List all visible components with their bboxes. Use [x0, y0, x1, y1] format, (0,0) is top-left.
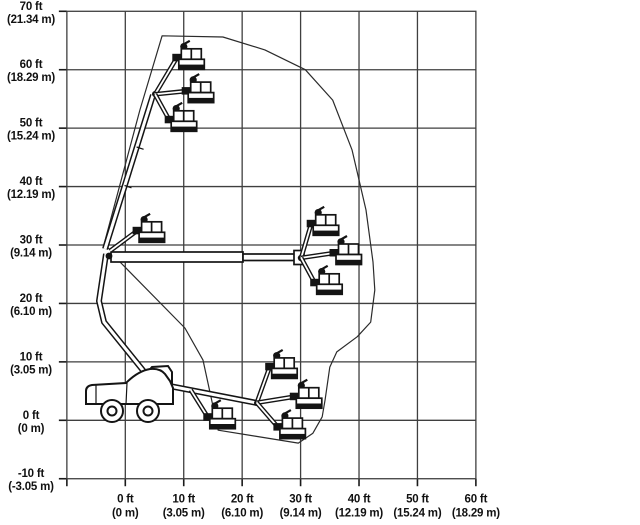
platform-basket	[330, 236, 362, 265]
x-tick-label-ft: 60 ft	[465, 494, 488, 506]
y-tick-label-m: (21.34 m)	[7, 14, 55, 26]
x-tick-label-m: (18.29 m)	[452, 508, 500, 520]
platform-basket	[265, 350, 297, 379]
y-tick-label-ft: 10 ft	[20, 351, 43, 363]
x-tick-label-m: (9.14 m)	[280, 508, 322, 520]
y-tick-label-ft: -10 ft	[18, 468, 45, 480]
platform-basket	[133, 214, 165, 243]
y-tick-label-m: (-3.05 m)	[8, 481, 54, 493]
y-tick-label-m: (12.19 m)	[7, 189, 55, 201]
platform-basket	[307, 207, 339, 236]
telescopic-boom-outer	[111, 252, 243, 262]
y-tick-label-ft: 0 ft	[23, 410, 40, 422]
y-tick-label-ft: 30 ft	[20, 235, 43, 247]
x-tick-label-m: (15.24 m)	[393, 508, 441, 520]
platform-basket	[182, 74, 214, 103]
y-tick-label-ft: 50 ft	[20, 118, 43, 130]
x-tick-label-m: (3.05 m)	[163, 508, 205, 520]
platform-basket	[172, 41, 204, 70]
platform-basket	[203, 400, 235, 429]
reach-diagram: 70 ft(21.34 m)60 ft(18.29 m)50 ft(15.24 …	[0, 0, 640, 525]
y-tick-label-ft: 60 ft	[20, 59, 43, 71]
x-tick-label-ft: 0 ft	[117, 494, 134, 506]
y-tick-label-m: (3.05 m)	[10, 364, 52, 376]
chassis-body	[86, 369, 173, 404]
x-tick-label-ft: 40 ft	[348, 494, 371, 506]
x-tick-label-ft: 50 ft	[406, 494, 429, 506]
x-tick-label-ft: 20 ft	[231, 494, 254, 506]
reach-diagram-svg: 70 ft(21.34 m)60 ft(18.29 m)50 ft(15.24 …	[0, 0, 640, 525]
y-tick-label-m: (9.14 m)	[10, 248, 52, 260]
platform-basket	[290, 380, 322, 409]
x-tick-label-m: (0 m)	[112, 508, 139, 520]
platform-basket	[310, 266, 342, 295]
y-tick-label-m: (18.29 m)	[7, 72, 55, 84]
y-tick-label-ft: 20 ft	[20, 293, 43, 305]
y-tick-label-ft: 40 ft	[20, 176, 43, 188]
telescopic-boom-inner	[243, 254, 299, 261]
riser-arm	[99, 254, 150, 379]
x-tick-label-m: (6.10 m)	[221, 508, 263, 520]
x-tick-label-ft: 10 ft	[172, 494, 195, 506]
y-tick-label-m: (0 m)	[18, 423, 45, 435]
x-tick-label-m: (12.19 m)	[335, 508, 383, 520]
y-tick-label-m: (15.24 m)	[7, 131, 55, 143]
y-tick-label-ft: 70 ft	[20, 1, 43, 13]
platform-basket	[165, 103, 197, 132]
x-tick-label-ft: 30 ft	[289, 494, 312, 506]
boom-pivot	[106, 253, 113, 260]
y-tick-label-m: (6.10 m)	[10, 306, 52, 318]
